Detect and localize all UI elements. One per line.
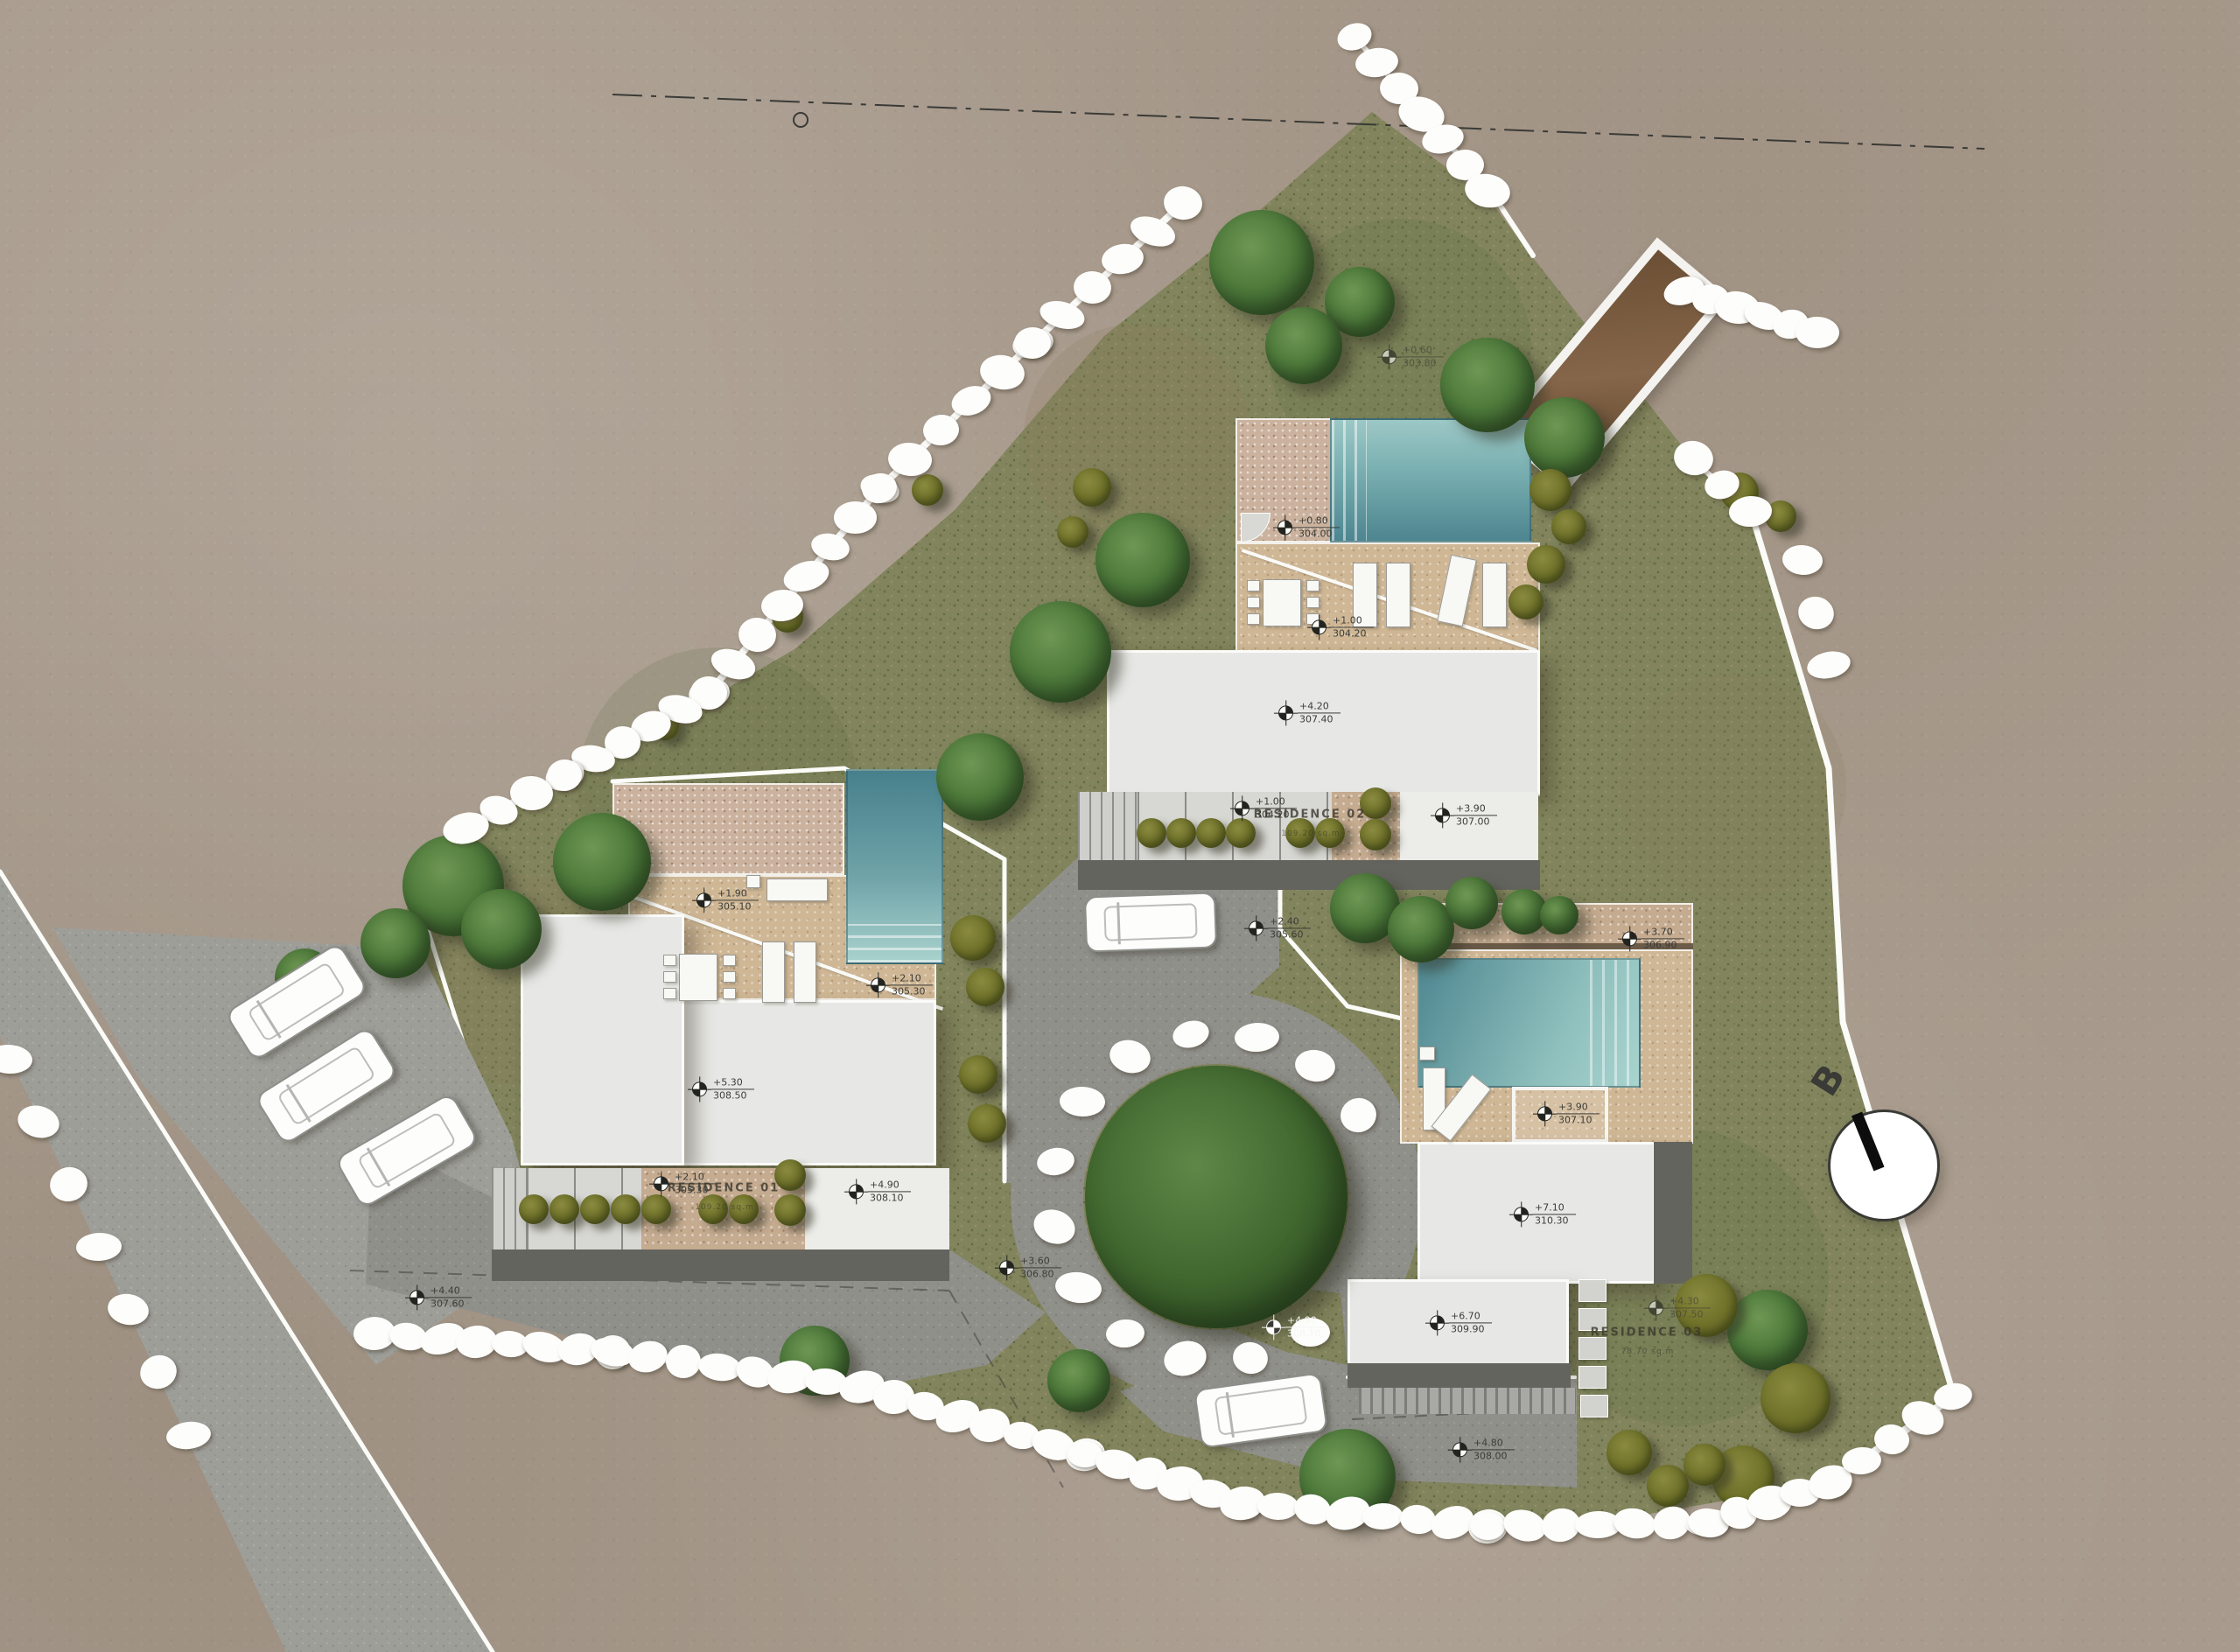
elevation-marker-r01-terrace-east: +4.90308.10 xyxy=(849,1179,911,1203)
relative-level: +4.90 xyxy=(1285,1315,1328,1327)
absolute-level: 308.50 xyxy=(711,1090,754,1102)
elevation-marker-r03-roof-level: +7.10310.30 xyxy=(1514,1202,1576,1226)
benchmark-icon xyxy=(1278,706,1293,721)
elevation-marker-r02-deck-level: +1.00304.20 xyxy=(1312,615,1374,639)
benchmark-icon xyxy=(1266,1320,1281,1335)
residence-label: RESIDENCE 01 xyxy=(668,1182,780,1195)
benchmark-icon xyxy=(1452,1443,1467,1458)
benchmark-icon xyxy=(1312,620,1326,635)
elevation-marker-road-west: +4.40307.60 xyxy=(409,1285,472,1309)
absolute-level: 306.80 xyxy=(1018,1269,1061,1280)
absolute-level: 303.80 xyxy=(1401,358,1444,369)
absolute-level: 308.10 xyxy=(1285,1328,1328,1340)
relative-level: +4.40 xyxy=(429,1285,472,1298)
absolute-level: 307.10 xyxy=(1557,1115,1599,1126)
relative-level: +4.30 xyxy=(1668,1296,1711,1308)
absolute-level: 304.20 xyxy=(1331,628,1374,640)
benchmark-icon xyxy=(692,1082,707,1097)
relative-level: +7.10 xyxy=(1533,1202,1576,1214)
section-marker-b: B xyxy=(1828,1109,1940,1221)
benchmark-icon xyxy=(1382,350,1396,365)
relative-level: +3.70 xyxy=(1641,927,1684,939)
residence-label: RESIDENCE 02 xyxy=(1254,808,1367,822)
absolute-level: 307.60 xyxy=(429,1298,472,1310)
absolute-level: 307.50 xyxy=(1668,1309,1711,1320)
benchmark-icon xyxy=(409,1291,424,1305)
annotation-layer: +4.20307.40+1.00304.20+3.90307.00+1.0030… xyxy=(0,0,2240,1652)
residence-area-label: 109.20 sq.m xyxy=(695,1203,753,1212)
elevation-marker-r01-deck-level: +2.10305.30 xyxy=(871,973,933,997)
benchmark-icon xyxy=(1430,1316,1445,1331)
benchmark-icon xyxy=(871,978,885,993)
residence-area-label: 78.70 sq.m xyxy=(1621,1347,1675,1356)
relative-level: +1.00 xyxy=(1331,615,1374,627)
absolute-level: 309.90 xyxy=(1449,1324,1492,1335)
benchmark-icon xyxy=(999,1261,1014,1276)
relative-level: +1.90 xyxy=(716,888,759,900)
relative-level: +4.90 xyxy=(868,1179,911,1192)
site-plan: +4.20307.40+1.00304.20+3.90307.00+1.0030… xyxy=(0,0,2240,1652)
elevation-marker-r03-garden-level: +4.30307.50 xyxy=(1648,1296,1711,1319)
benchmark-icon xyxy=(1648,1301,1663,1316)
elevation-marker-r01-roof-level: +5.30308.50 xyxy=(692,1077,754,1101)
relative-level: +4.80 xyxy=(1472,1438,1515,1450)
benchmark-icon xyxy=(696,893,711,908)
absolute-level: 308.00 xyxy=(1472,1451,1515,1462)
benchmark-icon xyxy=(1514,1207,1529,1222)
elevation-marker-r03-deck-level: +3.90307.10 xyxy=(1537,1102,1599,1125)
elevation-marker-r02-roof-level: +4.20307.40 xyxy=(1278,701,1340,724)
elevation-marker-r03-roof-lower: +6.70309.90 xyxy=(1430,1311,1492,1334)
relative-level: +2.40 xyxy=(1268,916,1311,928)
absolute-level: 305.60 xyxy=(1268,929,1311,941)
absolute-level: 305.10 xyxy=(716,901,759,913)
elevation-marker-garden-north: +0.60303.80 xyxy=(1382,345,1444,368)
elevation-marker-r03-path-level: +3.70306.90 xyxy=(1622,927,1684,950)
absolute-level: 306.90 xyxy=(1641,940,1684,951)
benchmark-icon xyxy=(654,1177,668,1192)
elevation-marker-r02-terrace-east: +3.90307.00 xyxy=(1435,803,1497,827)
benchmark-icon xyxy=(1435,808,1450,823)
benchmark-icon xyxy=(1249,921,1263,936)
absolute-level: 308.10 xyxy=(868,1193,911,1204)
residence-label: RESIDENCE 03 xyxy=(1591,1326,1704,1340)
residence-area-label: 109.20 sq.m xyxy=(1281,829,1340,838)
relative-level: +4.20 xyxy=(1298,701,1340,713)
elevation-marker-driveway-south: +4.80308.00 xyxy=(1452,1438,1515,1461)
elevation-marker-r01-terrace-upper: +1.90305.10 xyxy=(696,888,759,912)
relative-level: +3.90 xyxy=(1454,803,1497,815)
absolute-level: 307.00 xyxy=(1454,816,1497,828)
elevation-marker-lawn-south: +4.90308.10 xyxy=(1266,1315,1328,1339)
absolute-level: 304.00 xyxy=(1297,528,1340,540)
relative-level: +3.60 xyxy=(1018,1256,1061,1268)
benchmark-icon xyxy=(849,1185,864,1200)
absolute-level: 310.30 xyxy=(1533,1215,1576,1227)
relative-level: +6.70 xyxy=(1449,1311,1492,1323)
elevation-marker-driveway-north: +2.40305.60 xyxy=(1249,916,1311,940)
relative-level: +0.80 xyxy=(1297,515,1340,528)
elevation-marker-driveway-center: +3.60306.80 xyxy=(999,1256,1061,1279)
absolute-level: 305.30 xyxy=(890,986,933,997)
elevation-marker-r02-pool-side: +0.80304.00 xyxy=(1277,515,1340,539)
relative-level: +1.00 xyxy=(1254,796,1297,808)
benchmark-icon xyxy=(1537,1107,1552,1122)
relative-level: +0.60 xyxy=(1401,345,1444,357)
benchmark-icon xyxy=(1622,932,1637,947)
relative-level: +3.90 xyxy=(1557,1102,1599,1114)
benchmark-icon xyxy=(1235,801,1249,816)
benchmark-icon xyxy=(1277,521,1292,535)
absolute-level: 307.40 xyxy=(1298,714,1340,725)
relative-level: +2.10 xyxy=(890,973,933,985)
relative-level: +5.30 xyxy=(711,1077,754,1089)
